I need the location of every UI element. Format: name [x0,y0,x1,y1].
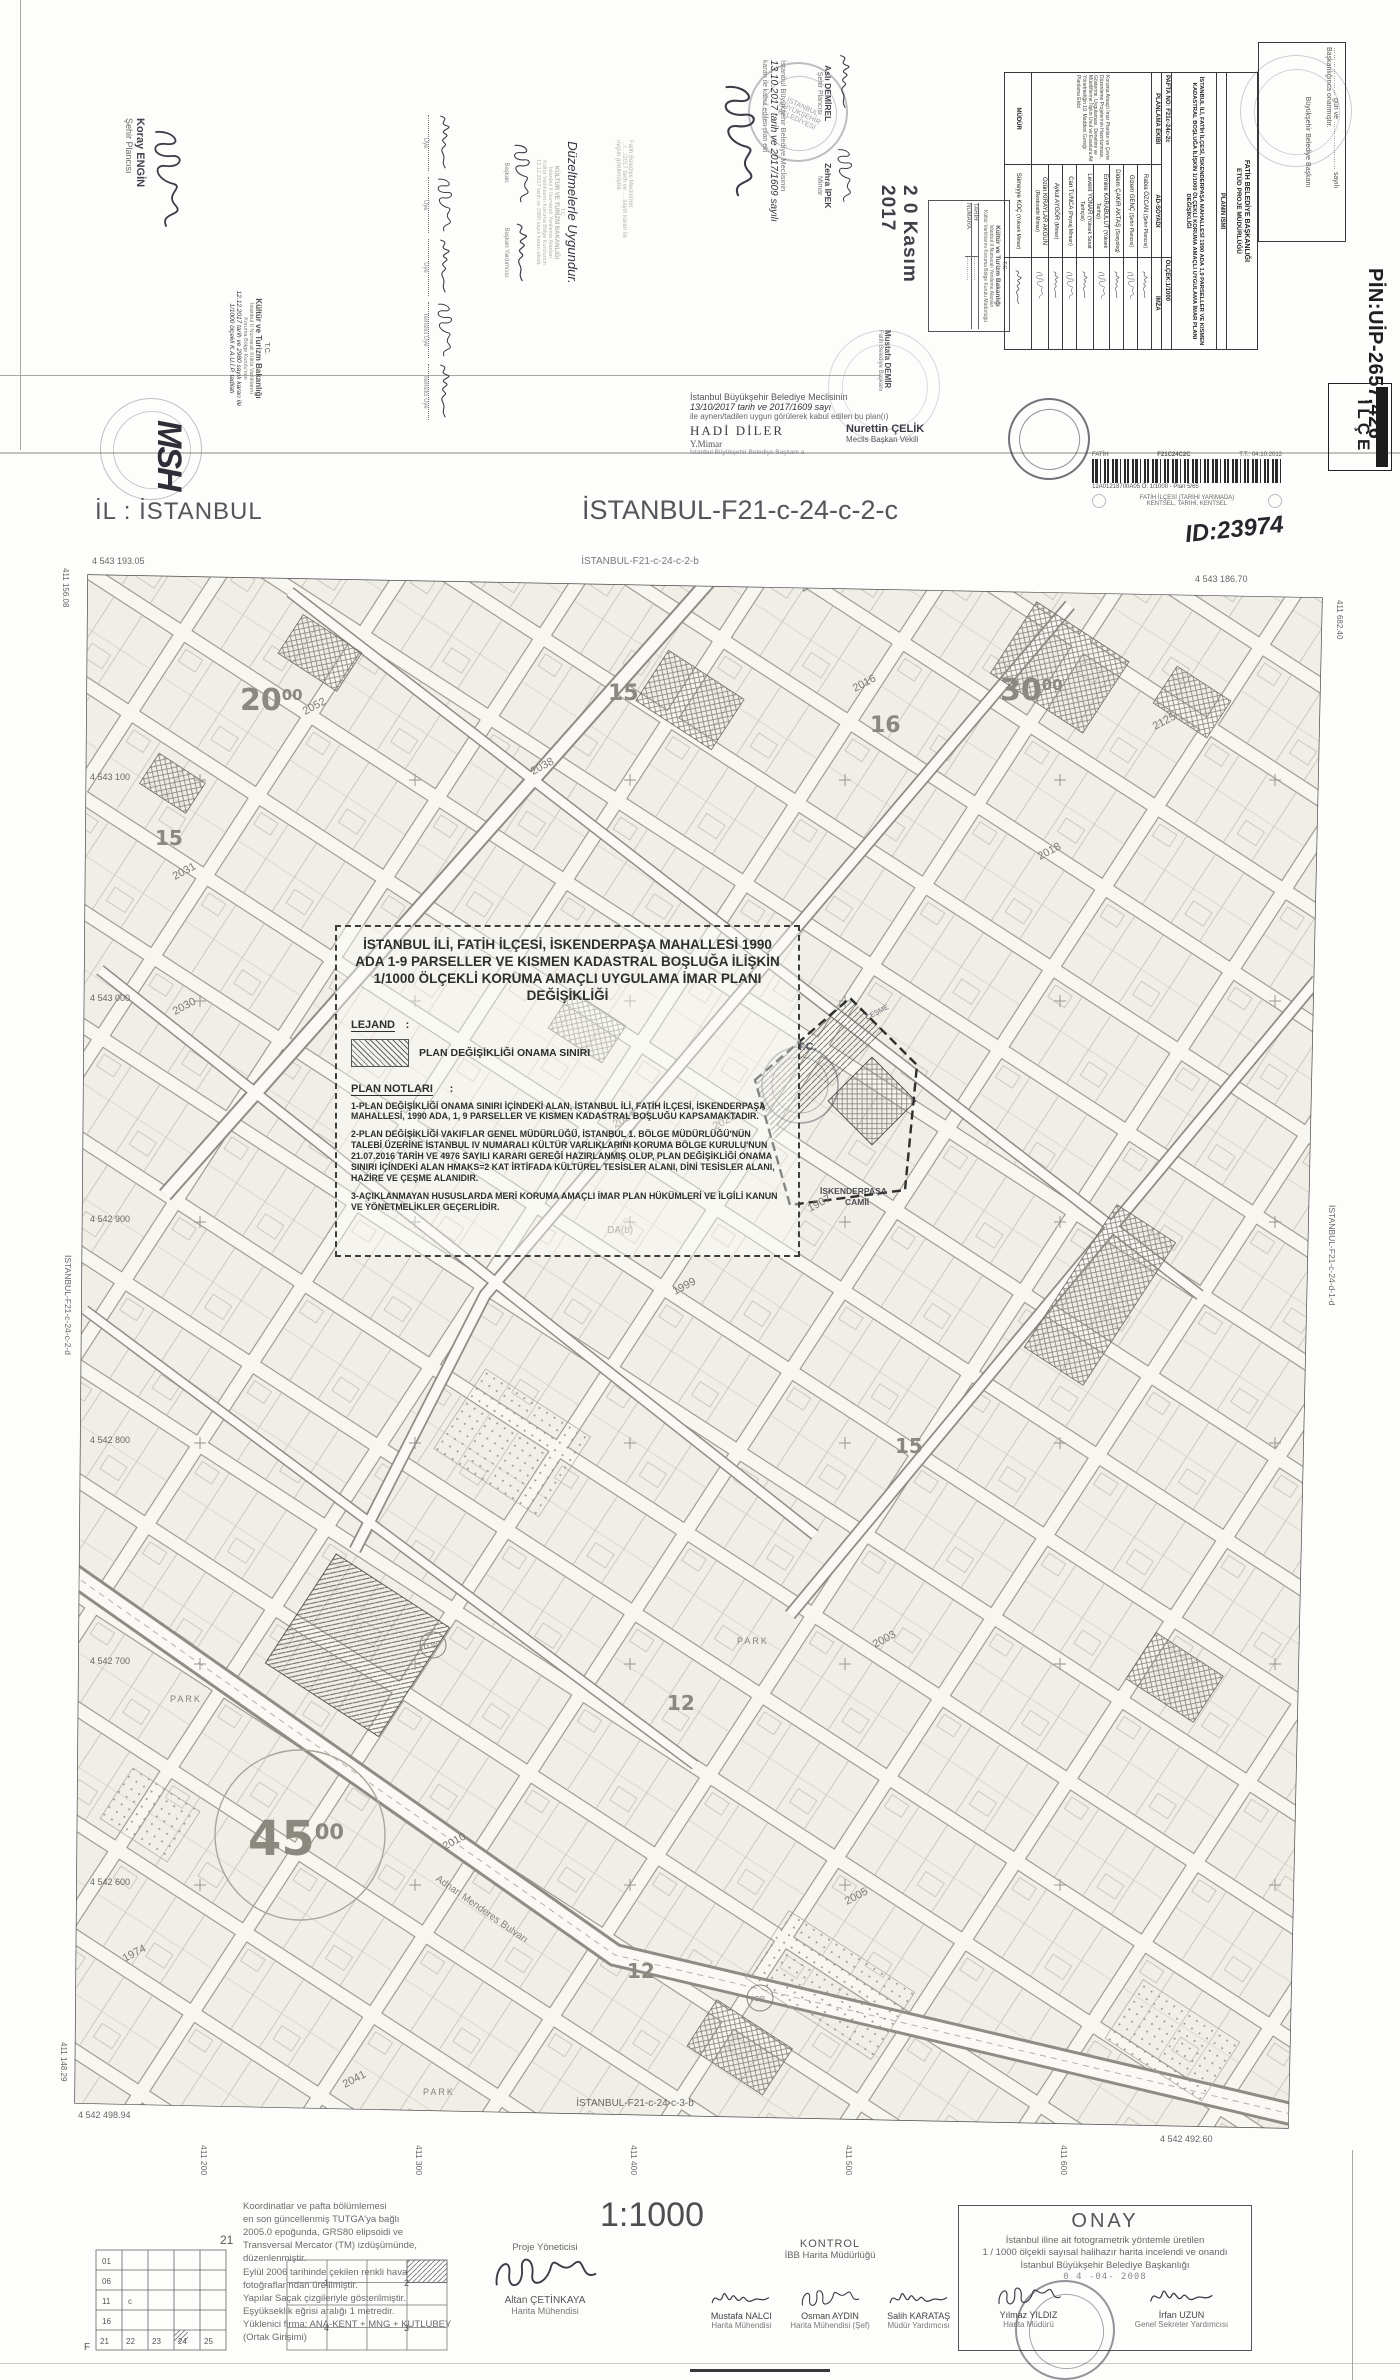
vice-chairman-label: Başkan Yardımcısı [503,223,509,283]
svg-text:PARK: PARK [737,1636,769,1646]
planners-asli-zehra: Aslı DEMİREL Şehir Plancısı Zehra İPEK M… [800,52,855,227]
faint-line: …/…/2017 tarih ve … sayılı kararı ile [621,140,627,300]
easting-label: 411 600 [1057,2145,1069,2195]
panel-title: İSTANBUL İLİ, FATİH İLÇESİ, İSKENDERPAŞA… [351,937,784,1005]
engineer-title: Harita Mühendisi [470,2306,620,2316]
pafta-no: PAFTA NO: F21c-24c-2c [1162,73,1172,258]
ministry-label: Kültür ve Turizm Bakanlığı [254,230,263,467]
plan-title-table: FATİH BELEDİYE BAŞKANLIĞI ETÜD PROJE MÜD… [1000,72,1258,350]
mudur-name: Sümeyye KOÇ [1015,173,1021,213]
note-line: Yüklenici firma: ANA-KENT + MNG + KUTLUB… [243,2318,503,2331]
notes-label: PLAN NOTLARI [351,1083,433,1096]
kontrol-subtitle: İBB Harita Müdürlüğü [700,2250,960,2261]
member-title: (Sosyolog) [1114,229,1120,253]
note-line: düzenlenmiştir. [243,2252,503,2265]
kontrol-block: KONTROL İBB Harita Müdürlüğü Mustafa NAL… [700,2238,960,2330]
col-ekip: PLANLAMA EKİBİ [1152,73,1162,165]
council-date-hand: 13.10.2017 tarih ve 2017/1609 sayılı [768,60,779,420]
note-line: fotoğraflarından üretilmiştir. [243,2279,503,2292]
grid-row-label: 06 [102,2277,111,2286]
stamp-line: 12.12.2017 tarih ve 2980 sayılı kararı e… [535,95,541,330]
grid-row-label: 16 [102,2317,111,2326]
member-name: Can TUNCA [1067,176,1073,209]
note-line: Eylül 2006 tarihinde çekilen renkli hava [243,2266,503,2279]
plan-note-2: 2-PLAN DEĞİŞİKLİĞİ VAKIFLAR GENEL MÜDÜRL… [351,1129,784,1184]
stamp-line: İstanbul II Numaralı Yenileme Alanları [547,95,553,330]
planner-name: Zehra İPEK [823,145,833,228]
member-name: Rabia ÖZCAN [1142,174,1148,212]
svg-text:12: 12 [667,1691,695,1715]
grid-col-label: 21 [100,2337,109,2346]
onama-line: ………………… gün ve ………………… sayılı [1332,47,1339,237]
engineer-name: Osman AYDIN [789,2311,872,2321]
member-name: Aykut AYGÖR [1053,183,1059,220]
easting-label: 411 200 [197,2145,209,2195]
plan-note-1: 1-PLAN DEĞİŞİKLİĞİ ONAMA SINIRI İÇİNDEKİ… [351,1101,784,1123]
legend-label: LEJAND [351,1019,395,1032]
note-line: Koordinatlar ve pafta bölümlemesi [243,2200,503,2213]
council-line: İstanbul Büyükşehir Belediye Meclisinin [779,60,788,420]
date-stamp: 2 0 Kasım 2017 [878,185,920,333]
correction-approval-block: Düzeltmelerle Uygundur. T.C. KÜLTÜR VE T… [470,95,580,330]
engineer-name: Salih KARATAŞ [877,2311,960,2321]
svg-text:16: 16 [870,713,901,738]
scan-edge-right-bottom [1352,2150,1353,2380]
member-name: Gizem GENÇ [1128,175,1134,211]
member-label: Üye [422,239,428,295]
box-line: Kültür Varlıklarını Koruma Bölge Kurulu … [982,203,988,329]
handwritten-decision: 12.12.2017 tarih ve 2980 sayılı kararı i… [235,230,242,467]
svg-text:PARK: PARK [170,1694,202,1704]
engineer-title: Müdür Yardımcısı [877,2321,960,2330]
corner-coord-tl: 4 543 193.05 [92,556,145,566]
northing-label: 4 542 800 [40,1435,130,1445]
corner-easting-tr: 411 682.40 [1332,600,1344,664]
chairman-label: Başkan [503,143,509,203]
ekip-aciklama: Koruma Amaçlı İmar Planları ve Çevre Düz… [1031,73,1151,165]
note-line: Yapılar Saçak çizgileriyle gösterilmişti… [243,2292,503,2305]
barcode-date: T.T.: 04.10.2012 [1239,452,1282,458]
onay-date-stamp: 0 4 -04- 2008 [967,2272,1243,2282]
member-label: Üye [422,177,428,233]
note-line: (Ortak Girişimi) [243,2331,503,2344]
grid-col-label: 23 [152,2337,161,2346]
plan-name-label: PLANIN İSMİ [1217,73,1227,350]
plan-name-value: İSTANBUL İLİ, FATİH İLÇESİ, İSKENDERPAŞA… [1172,73,1217,350]
handwritten-approval: Düzeltmelerle Uygundur. [565,95,580,330]
svg-text:15: 15 [155,826,183,850]
box-line: İstanbul II Numaralı Yenileme Alanları [988,203,994,329]
grid-col-label: 22 [126,2337,135,2346]
easting-label: 411 300 [412,2145,424,2195]
member-title: (Peyzaj Mimarı) [1067,211,1073,246]
signer-title: Meclis Başkan Vekili [846,435,924,444]
member-name: Levent YONAR [1086,173,1092,214]
onay-line: İstanbul iline ait fotogrametrik yönteml… [967,2235,1243,2247]
mosque-label2: CAMİİ [845,1197,869,1207]
signature [146,118,186,238]
planner-title: Şehir Plancısı [816,52,823,135]
svg-text:YOP: YOP [422,1641,438,1650]
member-title: (Mimar) [1053,222,1059,239]
barcode-code: F21C24C2C [1157,452,1190,458]
handwritten-decision: 1/1000 ölçekli K.A.U.İ.P. tadilatı [228,230,235,467]
corner-easting-bl: 411 148.29 [56,2042,68,2106]
stamp-line: T.C. [559,95,565,330]
signer-title: Y.Mimar [690,439,806,449]
west-sheet-label: İSTANBUL-F21-c-24-c-2-d [60,1255,73,1407]
council-line: kararı ile kabul edilen plan eki [761,60,768,420]
signer-name: Nurettin ÇELİK [846,423,924,435]
svg-text:15: 15 [608,681,639,706]
corner-easting-tl: 411 156.08 [58,568,70,630]
planner-koray-block: Koray ENGİN Şehir Plancısı [118,118,186,328]
corner-coord-tr: 4 543 186.70 [1195,574,1248,584]
planner-name: Aslı DEMİREL [823,52,833,135]
scanned-plan-sheet: Koray ENGİN Şehir Plancısı MSH T.C. Kült… [0,0,1400,2380]
plan-info-panel: İSTANBUL İLİ, FATİH İLÇESİ, İSKENDERPAŞA… [335,925,800,1257]
northing-label: 4 542 900 [40,1214,130,1224]
member-label: Üye [422,115,428,171]
east-sheet-label: İSTANBUL-F21-c-24-d-1-d [1324,1205,1337,1357]
tarih-label: TARİH [972,203,978,257]
onay-title: ONAY [967,2210,1243,2233]
tc-label: T.C. [263,230,270,467]
sheet-title: İSTANBUL-F21-c-24-c-2-c [460,495,1020,526]
fatih-council-faint-note: Fatih Belediye Meclisi'nin …/…/2017 tari… [595,140,633,300]
corner-coord-br: 4 542 492.60 [1160,2134,1213,2144]
northing-label: 4 542 700 [40,1656,130,1666]
stamp-line: KÜLTÜR VE TURİZM BAKANLIĞI [553,95,559,330]
board-line: Koruma Bölge Kurulu'nun [242,230,248,467]
grid-top-label: 21 [220,2233,234,2247]
project-manager-block: Proje Yöneticisi Altan ÇETİNKAYA Harita … [470,2242,620,2316]
onama-line: Başkanlığınca onanmıştır. [1325,47,1332,237]
easting-label: 411 500 [842,2145,854,2195]
mudur-label: MÜDÜR [1004,73,1031,165]
map-production-notes: Koordinatlar ve pafta bölümlemesi en son… [243,2200,503,2344]
onama-box: ………………… gün ve ………………… sayılı Başkanlığı… [1258,42,1346,242]
province-label: İL : İSTANBUL [95,498,263,526]
engineer-title: Harita Mühendisi (Şef) [789,2321,872,2330]
emblem-icon [1268,494,1282,508]
corner-coord-bl: 4 542 498.94 [78,2110,131,2120]
engineer-title: Harita Mühendisi [700,2321,783,2330]
barcode-left-label: FATİH [1092,452,1109,458]
svg-text:12: 12 [627,1959,655,1983]
member-name: Emine KARABULUT [1102,174,1108,229]
grid-row-label: 01 [102,2257,111,2266]
ilce-box: İLÇE [1328,383,1392,471]
mudur-title: (Yüksek Mimar) [1015,214,1021,249]
grid-f-label: F [84,2342,90,2353]
member-name: Özün KIRAYLAR AKGÜN [1041,177,1047,245]
board-line: İstanbul II Numaralı Kültür Varlıklarını [248,230,254,467]
northing-label: 4 542 600 [40,1877,130,1887]
dark-round-stamp [1008,398,1090,480]
engineer-name: Altan ÇETİNKAYA [470,2295,620,2306]
note-line: Transversal Mercator (TM) izdüşümünde, [243,2239,503,2252]
district-label2: KENTSEL, TARİHİ, KENTSEL [1111,501,1263,507]
grid-c-label: c [128,2297,132,2306]
northing-label: 4 543 100 [40,772,130,782]
legend-swatch [351,1039,409,1067]
planner-title: Mimar [816,145,823,228]
kultur-kurul-note: T.C. Kültür ve Turizm Bakanlığı İstanbul… [223,230,270,467]
easting-label: 411 400 [627,2145,639,2195]
onay-round-stamp [1015,2280,1115,2380]
member-title: (Şehir Plancısı) [1142,214,1148,248]
member-title: (Restoratör Mimar) [1034,190,1040,232]
note-line: 2005.0 epoğunda, GRS80 elipsoidi ve [243,2226,503,2239]
south-sheet-label: İSTANBUL-F21-c-24-c-3-b [475,2098,795,2109]
mosque-label: İSKENDERPAŞA [820,1186,887,1196]
planner-title: Şehir Plancısı [124,118,134,328]
numara-label: NUMARA [965,203,971,257]
plan-note-3: 3-AÇIKLANMAYAN HUSUSLARDA MERİ KORUMA AM… [351,1191,784,1213]
member-title: (Şehir Plancısı) [1128,213,1134,247]
faint-line: Fatih Belediye Meclisi'nin [627,140,633,300]
engineer-name: Mustafa NALCI [700,2311,783,2321]
scale-label: 1:1000 [600,2196,704,2235]
note-line: Eşyükseklik eğrisi aralığı 1 metredir. [243,2305,503,2318]
emblem-icon [1092,494,1106,508]
ilce-barcode-mark [1376,387,1388,467]
date-stamp-text: 2 0 Kasım 2017 [876,185,920,333]
legend-item-label: PLAN DEĞİŞİKLİĞİ ONAMA SINIRI [419,1047,590,1059]
scan-edge-left [20,0,21,450]
fold-line-bottom [0,2363,1400,2364]
barcode-block: FATİH F21C24C2C T.T.: 04.10.2012 12A0121… [1092,452,1282,508]
onay-line: 1 / 1000 ölçekli sayısal halihazır harit… [967,2247,1243,2259]
member-label: Temsilci Üye [422,302,428,358]
project-manager-label: Proje Yöneticisi [470,2242,620,2253]
scan-mark-bottom [690,2369,830,2372]
svg-text:15: 15 [895,1434,923,1458]
approver-title: Genel Sekreter Yardımcısı [1120,2320,1243,2329]
kurul-registry-box: T.C. Kültür ve Turizm Bakanlığı İstanbul… [928,200,1010,332]
ilce-text: İLÇE [1353,384,1373,470]
grid-col-label: 25 [204,2337,213,2346]
handwritten-id: ID:23974 [1184,511,1285,549]
cadastral-map: T.C. İSKENDERPAŞA CAMİİ ÇEŞME 2000 3000 … [55,550,1345,2140]
approver-name: İrfan UZUN [1120,2310,1243,2320]
signer-subtitle: İstanbul Büyükşehir Belediye Başkanı a. [690,449,806,456]
svg-text:PARK: PARK [423,2087,455,2097]
grid-row-label: 11 [102,2297,111,2306]
kontrol-label: KONTROL [700,2238,960,2250]
northing-label: 4 543 000 [40,993,130,1003]
col-adsoyad: AD-SOYADI [1152,165,1162,257]
ibb-council-note: İstanbul Büyükşehir Belediye Meclisinin … [700,60,788,420]
onay-line: İstanbul Büyükşehir Belediye Başkanlığı [967,2260,1243,2272]
planner-name: Koray ENGİN [134,118,146,328]
barcode-stripes [1092,459,1282,483]
barcode-subtext: 12A01218700A05 Ö: 1/1000 - Plan 5/65 [1092,484,1282,490]
member-label: Temsilci Üye [422,364,428,420]
note-line: en son güncellenmiş TUTGA'ya bağlı [243,2213,503,2226]
onama-line: Büyükşehir Belediye Başkanı [1304,47,1311,237]
committee-signatures-row: Üye Üye Üye Temsilci Üye Temsilci Üye [292,115,457,420]
member-name: Didem ÇAKIR AKTAŞ [1114,169,1120,227]
map-texture: T.C. İSKENDERPAŞA CAMİİ ÇEŞME 2000 3000 … [55,550,1345,2140]
signer-name: HADİ DİLER [690,423,806,439]
col-imza: İMZA [1152,257,1162,349]
olcek: ÖLÇEK:1/1000 [1162,257,1172,349]
svg-text:YOP: YOP [749,1994,765,2003]
stamp-line: Kültür Varlıklarını Koruma Bölge Kurulun… [541,95,547,330]
